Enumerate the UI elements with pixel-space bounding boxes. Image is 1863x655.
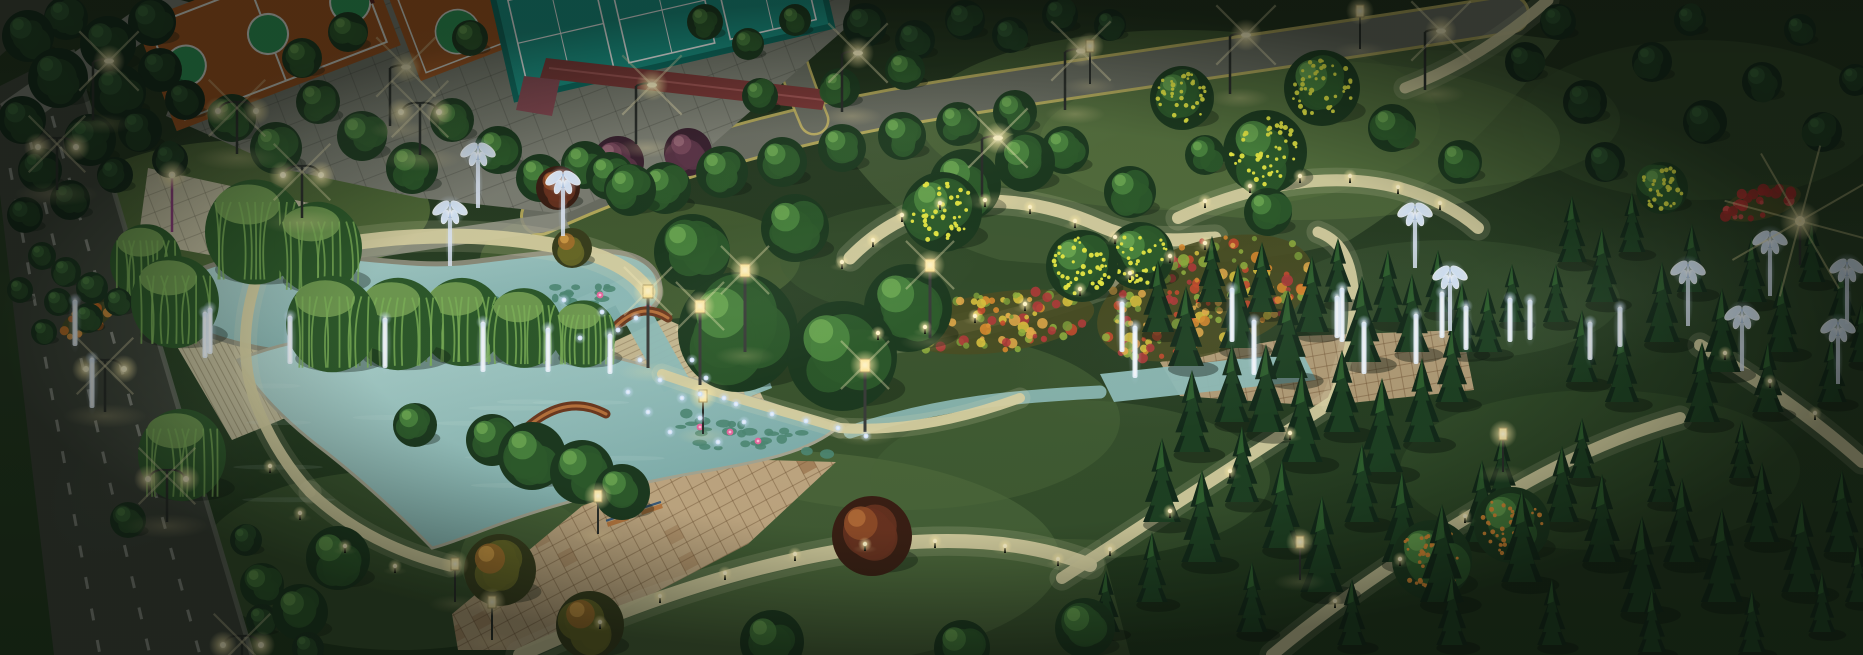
night-park-rendering [0,0,1863,655]
vignette [0,0,1863,655]
park-scene-canvas [0,0,1863,655]
vignette [0,0,1863,655]
